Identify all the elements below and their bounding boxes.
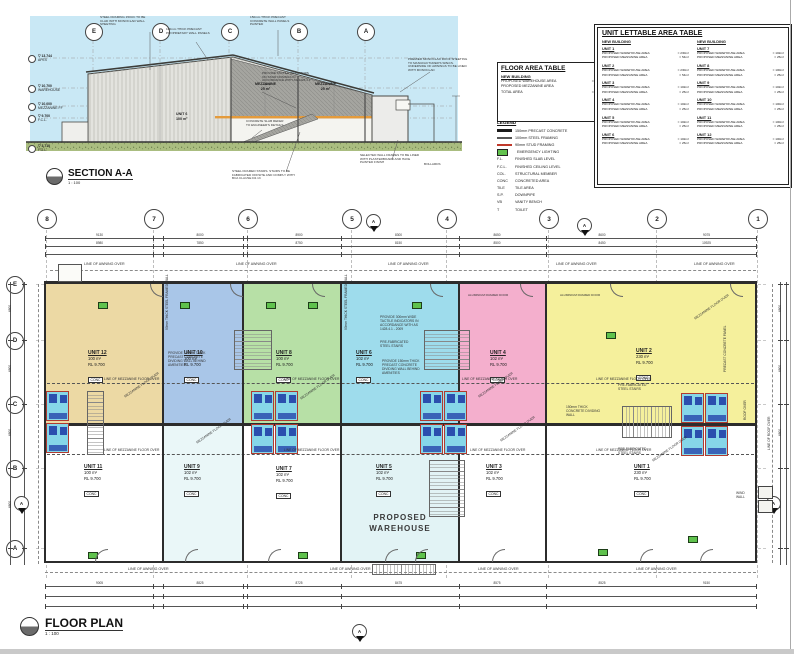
vanity-bench-icon [695,430,702,438]
awning-line-top [50,270,756,271]
grid-bubble-B: B [6,460,24,478]
dimension-value: 8725 [291,581,307,585]
unit-label: UNIT 5102 m²RL 9.700CONC [376,464,393,501]
section-note: STEEL FRAMED STAIRS. STAIRS TO BE FABRIC… [232,170,296,181]
dimension-value: 10925 [699,241,715,245]
unit-room-unit-9 [163,426,243,563]
unit-dividing-wall [242,281,244,563]
wind-wall-block [758,486,773,499]
vanity-bench-icon [60,395,67,403]
unit-label: UNIT 6102 m²RL 9.700CONC [356,350,373,387]
plan-note: LINE OF MEZZANINE FLOOR OVER [596,378,651,382]
level-marker-icon [28,145,36,153]
toilet-icon [254,394,262,403]
plan-note: PROVIDE 150mm THICK PRECAST CONCRETE DIV… [168,352,210,368]
plan-note: LINE OF AWNING OVER [236,262,277,266]
dimension-tick [459,584,460,589]
dimension-line [24,282,25,565]
dimension-tick [153,236,154,241]
plan-note: LINE OF AWNING OVER [388,262,429,266]
plan-note: 90mm THICK STEEL FRAMED WALL [166,274,170,330]
dimension-tick [153,252,154,257]
level-marker-icon [28,103,36,111]
dimension-tick [247,244,248,249]
dimension-tick [243,252,244,257]
dimension-value: 8150 [391,241,407,245]
level-marker-icon [28,115,36,123]
dimension-tick [22,468,27,469]
dimension-value: 8750 [291,241,307,245]
section-note: 150mm THICK PRECAST CONCRETE WALL PANELS… [250,16,300,27]
stair [429,460,465,517]
grid-bubble-7: 7 [144,209,164,229]
dimension-tick [341,244,342,249]
dimension-tick [163,252,164,257]
plan-note: 90mm THICK STEEL FRAMED WALL [345,274,349,330]
dimension-line [45,606,756,607]
floor-plan: 87654321EDCBA913080008900830086508600907… [0,0,794,655]
dimension-tick [153,244,154,249]
section-cut-arrow-icon [356,636,364,642]
amenities-pod [251,391,274,421]
tile-area [423,446,441,452]
emergency-light-icon [298,552,308,559]
section-cut-arrow-icon [370,226,378,232]
dimension-tick [163,236,164,241]
dimension-value: 8900 [291,233,307,237]
dimension-line [45,586,756,587]
vanity-bench-icon [458,395,465,403]
plan-note: LINE OF AWNING OVER [330,567,371,571]
plan-note: LINE OF MEZZANINE FLOOR OVER [470,449,525,453]
section-note: PREMIER MONOCLAD ROOF SHEETING TO MANUFA… [408,58,468,73]
dimension-tick [756,604,757,609]
emergency-light-icon [598,549,608,556]
dimension-tick [546,252,547,257]
tile-area [708,415,726,421]
dimension-tick [8,340,13,341]
dimension-value: 6800 [778,429,782,436]
dimension-value: 6800 [8,365,12,372]
level-text: ▽ 10.000MEZZANINE FF [38,102,63,110]
toilet-icon [49,426,57,435]
dimension-tick [153,594,154,599]
dimension-tick [45,594,46,599]
grid-bubble-D: D [6,332,24,350]
section-cut-arrow-icon [581,230,589,236]
vanity-bench-icon [458,428,465,436]
level-text: ▽ 9.700F.C.L. [38,114,50,122]
dimension-tick [459,604,460,609]
dimension-value: 9150 [699,581,715,585]
section-grid-bubble-C: C [221,23,239,41]
dimension-tick [546,244,547,249]
section-cut-arrow-icon [18,508,26,514]
section-note: STEEL FRAMING 150UC TO BE CLAD WITH MONO… [100,16,152,27]
dimension-value: 9005 [92,581,108,585]
dimension-value: 6800 [778,305,782,312]
level-marker-icon [28,85,36,93]
dimension-tick [45,252,46,257]
unit-label: UNIT 7102 m²RL 9.700CONC [276,466,293,503]
dimension-line [45,596,756,597]
roof-over-line-right [772,284,773,563]
grid-bubble-6: 6 [238,209,258,229]
dimension-tick [247,604,248,609]
vanity-bench-icon [719,430,726,438]
dimension-tick [153,604,154,609]
amenities-pod [420,424,443,454]
dimension-tick [163,584,164,589]
awning-line-left [38,284,39,564]
dimension-tick [459,594,460,599]
toilet-icon [447,394,455,403]
dimension-tick [546,604,547,609]
stair [372,564,436,575]
dimension-tick [247,584,248,589]
grid-bubble-2: 2 [647,209,667,229]
vanity-bench-icon [434,428,441,436]
toilet-icon [708,429,716,438]
tile-area [254,413,272,419]
floor-plan-title: FLOOR PLAN [45,616,123,631]
dimension-tick [778,468,783,469]
dimension-line [45,254,756,255]
level-text: ▽ 13.744APEX [38,54,52,62]
dimension-tick [243,584,244,589]
dimension-value: 9130 [92,233,108,237]
section-note: CONCRETE SLAB REFER TO ENGINEER'S DETAIL… [246,120,288,127]
dimension-tick [22,284,27,285]
plan-note: LINE OF MEZZANINE FLOOR OVER [104,449,159,453]
vanity-bench-icon [695,397,702,405]
dimension-tick [459,236,460,241]
tile-area [254,446,272,452]
dimension-tick [341,604,342,609]
unit-dividing-wall [340,281,342,563]
amenities-pod [46,391,69,421]
level-text: ▽ 3.710F.G.L. [38,144,50,152]
dimension-value: 8525 [594,581,610,585]
section-room-label: MEZZANINE25 m² [315,82,336,91]
level-text: ▽ 10.700WAREHOUSE [38,84,60,92]
dimension-tick [243,594,244,599]
dimension-tick [756,584,757,589]
plan-note: LINE OF AWNING OVER [636,567,677,571]
plan-note: PROVIDE 300mm WIDE TACTILE INDICATORS IN… [380,316,426,332]
unit-label: UNIT 9102 m²RL 9.700CONC [184,464,201,501]
dimension-tick [784,548,789,549]
tile-area [708,448,726,454]
dimension-tick [45,236,46,241]
dimension-tick [8,404,13,405]
dimension-value: 9075 [699,233,715,237]
proposed-warehouse-label: PROPOSED WAREHOUSE [368,512,432,534]
plan-note: WIND WALL [736,492,754,500]
unit-label: UNIT 1230 m²RL 9.700CONC [634,464,651,501]
dimension-value: 6800 [8,429,12,436]
grid-bubble-C: C [6,396,24,414]
dimension-tick [247,236,248,241]
plan-note: LINE OF AWNING OVER [128,567,169,571]
dimension-line [786,282,787,565]
unit-label: UNIT 11100 m²RL 9.700CONC [84,464,102,501]
dimension-tick [756,236,757,241]
grid-bubble-4: 4 [437,209,457,229]
dimension-tick [784,284,789,285]
dimension-tick [778,340,783,341]
dimension-tick [247,594,248,599]
vanity-bench-icon [289,395,296,403]
dimension-tick [22,340,27,341]
dimension-tick [756,594,757,599]
plan-note: 150mm THICK CONCRETE DIVIDING WALL [566,406,606,418]
dimension-tick [45,244,46,249]
dimension-tick [341,584,342,589]
dimension-tick [459,252,460,257]
grid-bubble-5: 5 [342,209,362,229]
dimension-value: 6800 [8,305,12,312]
dimension-value: 8575 [489,581,505,585]
toilet-icon [447,427,455,436]
dimension-tick [756,252,757,257]
dimension-tick [784,404,789,405]
amenities-pod [444,391,467,421]
section-note: BOLLARDS [424,163,454,167]
dimension-tick [8,284,13,285]
stair [234,330,272,370]
vanity-bench-icon [265,395,272,403]
toilet-icon [278,427,286,436]
toilet-icon [423,394,431,403]
grid-bubble-A: A [6,540,24,558]
unit-dividing-wall [755,281,757,563]
dimension-tick [546,236,547,241]
toilet-icon [423,427,431,436]
tile-area [423,413,441,419]
plan-note: PRECAST CONCRETE PANEL [724,326,728,372]
dimension-value: 8980 [92,241,108,245]
dimension-line [45,238,756,239]
dimension-tick [243,244,244,249]
dimension-value: 6800 [8,501,12,508]
dimension-tick [341,594,342,599]
section-note: SELECTED WALL FRAMES TO BE LINED WITH PL… [360,154,420,165]
emergency-light-icon [688,536,698,543]
emergency-light-icon [308,302,318,309]
dimension-tick [22,548,27,549]
tile-area [447,413,465,419]
plan-note: ALUMINIUM FRAMED DOOR [560,294,600,298]
toilet-icon [684,396,692,405]
amenities-pod [705,426,728,456]
plan-note: LINE OF AWNING OVER [478,567,519,571]
section-note: 100mm THICK PRECAST PROPRIETARY WALL PAN… [166,28,212,35]
dimension-tick [22,404,27,405]
emergency-light-icon [412,302,422,309]
dimension-tick [341,252,342,257]
grid-bubble-E: E [6,276,24,294]
vanity-bench-icon [289,428,296,436]
unit-label: UNIT 3102 m²RL 9.700CONC [486,464,503,501]
dimension-line [780,282,781,565]
dimension-tick [247,252,248,257]
amenities-pod [275,391,298,421]
plan-note: LINE OF ROOF OVER [768,416,772,450]
unit-dividing-wall [162,281,164,563]
sheet-edge-right [790,0,791,650]
unit-dividing-wall [44,281,46,563]
dimension-value: 8475 [391,581,407,585]
wind-wall-block [758,500,773,513]
tile-area [49,445,67,451]
emergency-light-icon [266,302,276,309]
plan-note: ROOF OVER [744,400,748,420]
grid-bubble-3: 3 [539,209,559,229]
dimension-line [45,246,756,247]
dimension-tick [163,594,164,599]
dimension-tick [756,244,757,249]
dimension-tick [546,594,547,599]
dimension-tick [546,584,547,589]
unit-dividing-wall [458,281,460,563]
plan-note: LINE OF MEZZANINE FLOOR OVER [284,449,339,453]
plan-marker-icon [20,617,39,636]
tile-area [684,415,702,421]
toilet-icon [254,427,262,436]
emergency-light-icon [98,302,108,309]
emergency-light-icon [606,332,616,339]
dimension-tick [45,584,46,589]
floor-plan-scale: 1 : 100 [45,631,123,636]
unit-dividing-wall [545,281,547,563]
drawing-sheet: SECTION A-A 1 : 100 FLOOR AREA TABLE NEW… [0,0,794,655]
dimension-tick [778,548,783,549]
toilet-icon [708,396,716,405]
section-grid-bubble-A: A [357,23,375,41]
toilet-icon [49,394,57,403]
dimension-value: 7850 [192,241,208,245]
dimension-tick [341,236,342,241]
tile-area [684,448,702,454]
tile-area [49,413,67,419]
dimension-tick [8,468,13,469]
dimension-value: 6800 [778,365,782,372]
dimension-value: 8650 [489,233,505,237]
dimension-tick [778,284,783,285]
grid-bubble-8: 8 [37,209,57,229]
amenities-pod [420,391,443,421]
toilet-icon [278,394,286,403]
level-marker-icon [28,55,36,63]
dimension-tick [45,604,46,609]
section-note: PROVIDE TACTILE INDICATORS ON STAIR NOSI… [262,72,312,87]
section-room-label: UNIT 6100 m² [176,112,187,121]
plan-note: ALUMINIUM FRAMED DOOR [468,294,508,298]
plan-note: LINE OF AWNING OVER [556,262,597,266]
vanity-bench-icon [719,397,726,405]
dimension-tick [153,584,154,589]
dimension-tick [163,604,164,609]
dimension-line [10,282,11,565]
dimension-tick [784,468,789,469]
dimension-tick [778,404,783,405]
amenities-pod [705,393,728,423]
tile-area [278,413,296,419]
amenities-pod [681,393,704,423]
dimension-tick [8,548,13,549]
tile-area [447,446,465,452]
vanity-bench-icon [265,428,272,436]
vanity-bench-icon [434,395,441,403]
plan-note: LINE OF AWNING OVER [84,262,125,266]
dimension-value: 8600 [594,233,610,237]
emergency-light-icon [180,302,190,309]
dimension-tick [243,604,244,609]
plan-note: PRE-FABRICATED STEEL STAIRS [618,384,652,392]
dimension-tick [163,244,164,249]
plan-note: PRE-FABRICATED STEEL STAIRS [380,341,414,349]
floor-plan-title-block: FLOOR PLAN 1 : 100 [20,616,123,636]
stair [622,406,672,438]
dimension-tick [784,340,789,341]
stair [424,330,470,370]
dimension-value: 8825 [192,581,208,585]
dimension-value: 8450 [594,241,610,245]
amenities-pod [251,424,274,454]
amenities-pod [46,423,69,453]
plan-note: PRE-FABRICATED STEEL STAIRS [618,448,652,456]
grid-bubble-1: 1 [748,209,768,229]
entry-landing [58,264,82,282]
plan-note: LINE OF AWNING OVER [694,262,735,266]
dimension-value: 8000 [192,233,208,237]
vanity-bench-icon [60,427,67,435]
dimension-value: 8300 [391,233,407,237]
plan-note: PROVIDE 150mm THICK PRECAST CONCRETE DIV… [382,360,424,376]
stair [87,391,104,455]
dimension-value: 8500 [489,241,505,245]
dimension-tick [459,244,460,249]
dimension-tick [243,236,244,241]
sheet-edge-bottom [0,649,794,654]
amenities-pod [444,424,467,454]
